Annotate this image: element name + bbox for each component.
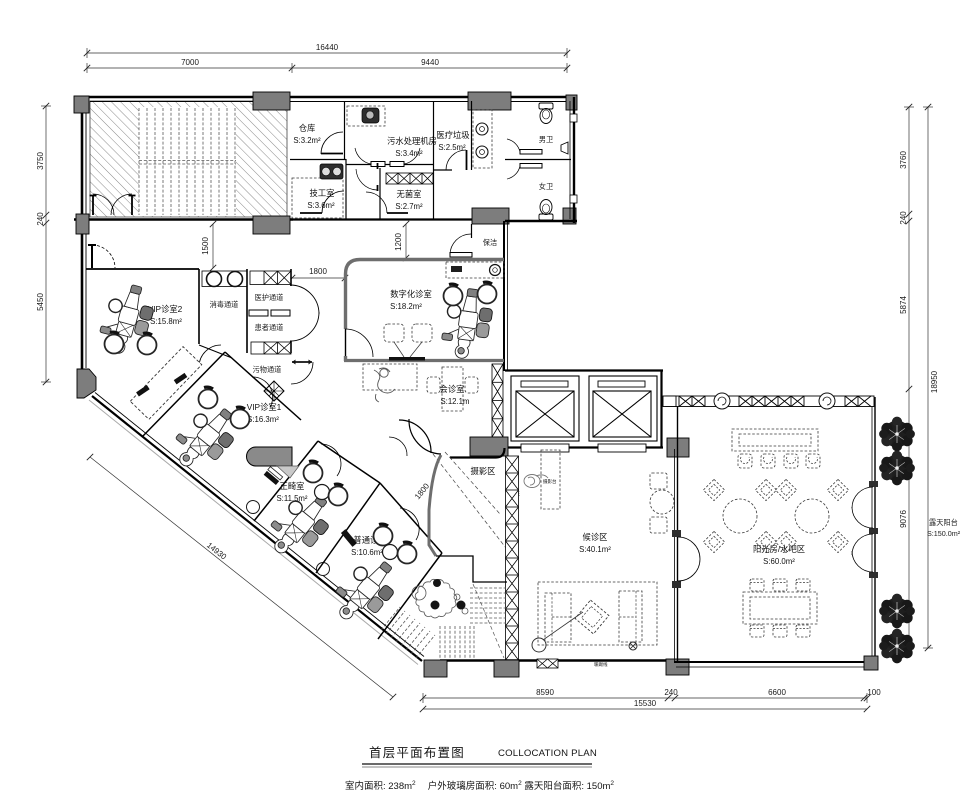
svg-text:5874: 5874: [899, 296, 908, 314]
svg-text:9076: 9076: [899, 510, 908, 528]
svg-text:5450: 5450: [36, 293, 45, 311]
svg-text:S:3.6m²: S:3.6m²: [307, 201, 335, 210]
svg-text:18950: 18950: [930, 370, 939, 393]
svg-text:16440: 16440: [316, 43, 339, 52]
svg-text:3750: 3750: [36, 152, 45, 170]
svg-text:技工室: 技工室: [310, 188, 335, 198]
svg-text:阳光房/水吧区: 阳光房/水吧区: [753, 544, 805, 554]
svg-text:240: 240: [899, 211, 908, 225]
svg-text:VIP诊室1: VIP诊室1: [247, 402, 282, 412]
svg-text:S:3.4m²: S:3.4m²: [395, 149, 423, 158]
svg-text:无菌室: 无菌室: [397, 189, 422, 199]
svg-text:6600: 6600: [768, 688, 786, 697]
svg-text:会诊室: 会诊室: [440, 384, 465, 394]
svg-text:摄影台: 摄影台: [543, 478, 557, 485]
svg-text:S:10.6m²: S:10.6m²: [351, 548, 383, 557]
svg-text:S:15.8m²: S:15.8m²: [150, 317, 182, 326]
svg-text:1800: 1800: [309, 267, 327, 276]
svg-text:女卫: 女卫: [539, 182, 553, 191]
svg-text:消毒通道: 消毒通道: [210, 300, 239, 309]
svg-text:暖踢线: 暖踢线: [594, 661, 608, 668]
svg-text:露天阳台: 露天阳台: [929, 518, 958, 527]
svg-text:候诊区: 候诊区: [583, 532, 608, 542]
svg-text:S:40.1m²: S:40.1m²: [579, 545, 611, 554]
svg-text:S:3.2m²: S:3.2m²: [293, 136, 321, 145]
svg-text:数字化诊室: 数字化诊室: [390, 289, 432, 299]
svg-text:正畸室: 正畸室: [280, 481, 305, 491]
svg-text:患者通道: 患者通道: [255, 323, 284, 332]
svg-text:1500: 1500: [201, 237, 210, 255]
svg-text:S:2.7m²: S:2.7m²: [395, 202, 423, 211]
svg-text:仓库: 仓库: [299, 123, 316, 133]
svg-text:15530: 15530: [634, 699, 657, 708]
svg-text:1200: 1200: [394, 233, 403, 251]
svg-text:240: 240: [36, 212, 45, 226]
svg-text:7000: 7000: [181, 58, 199, 67]
svg-text:室内面积: 238m2 户外玻璃房面积: 60m2 露天阳: 室内面积: 238m2 户外玻璃房面积: 60m2 露天阳台面积: 150m2: [345, 780, 614, 792]
svg-text:医疗垃圾: 医疗垃圾: [436, 130, 470, 140]
svg-text:污水处理机房: 污水处理机房: [387, 136, 437, 146]
svg-text:S:18.2m²: S:18.2m²: [390, 302, 422, 311]
svg-text:S:12.1m: S:12.1m: [440, 397, 469, 406]
svg-text:S:60.0m²: S:60.0m²: [763, 557, 795, 566]
svg-text:9440: 9440: [421, 58, 439, 67]
svg-text:COLLOCATION PLAN: COLLOCATION PLAN: [498, 748, 597, 759]
svg-text:首层平面布置图: 首层平面布置图: [369, 746, 465, 760]
svg-text:3760: 3760: [899, 151, 908, 169]
svg-text:100: 100: [867, 688, 881, 697]
svg-text:保洁: 保洁: [483, 238, 497, 247]
svg-text:医护通道: 医护通道: [255, 293, 284, 302]
svg-text:污物通道: 污物通道: [253, 365, 282, 374]
svg-text:男卫: 男卫: [539, 135, 553, 144]
svg-text:摄影区: 摄影区: [471, 466, 496, 476]
svg-text:S:150.0m²: S:150.0m²: [927, 529, 961, 538]
svg-text:S:16.3m²: S:16.3m²: [247, 415, 279, 424]
svg-text:8590: 8590: [536, 688, 554, 697]
svg-text:240: 240: [664, 688, 678, 697]
